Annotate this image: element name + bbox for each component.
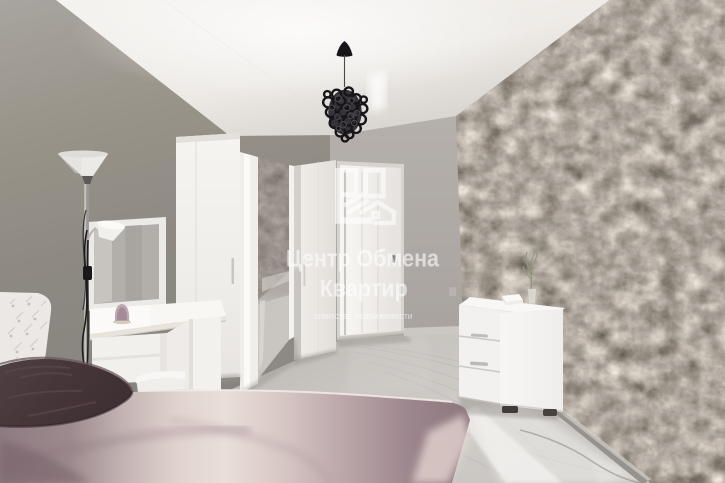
svg-text:агентство недвижимости: агентство недвижимости	[314, 311, 413, 321]
svg-text:Центр Обмена: Центр Обмена	[286, 246, 439, 273]
svg-text:Квартир: Квартир	[320, 276, 408, 303]
